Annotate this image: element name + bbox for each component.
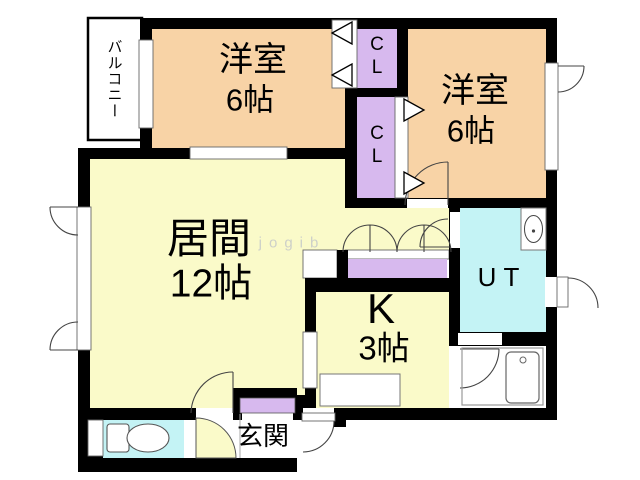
wall-shoe-cabinet	[233, 388, 297, 398]
bedroom2-window	[545, 63, 558, 170]
label-living-name: 居間	[167, 218, 251, 260]
living-window-arc-top	[50, 207, 78, 235]
label-closet-upper: CL	[368, 34, 387, 80]
wall-entrance-right-stub	[334, 413, 346, 427]
niche-wall	[337, 250, 348, 278]
wall-kitchen-left-upper	[305, 278, 316, 332]
utility-backdoor-leaf	[557, 277, 568, 307]
wall-kitchen-left-lower	[305, 388, 316, 408]
sink-basin-icon	[525, 216, 543, 243]
watermark: jogib	[259, 236, 326, 251]
label-closet-lower: CL	[368, 123, 387, 169]
wall-bath-bottom	[449, 408, 557, 420]
label-entrance: 玄関	[237, 423, 289, 449]
toilet-bowl-icon	[127, 424, 169, 452]
label-bedroom2-size: 6帖	[447, 116, 495, 147]
bedroom1-sliding-door	[190, 147, 287, 159]
wall-toilet-hall	[184, 408, 196, 420]
utility-backdoor-arc	[568, 278, 598, 308]
toilet-tank-icon	[107, 424, 129, 452]
living-window	[77, 207, 91, 350]
toilet-doorway	[184, 420, 196, 458]
front-door-leaf	[302, 413, 335, 421]
accordion-closet	[303, 250, 449, 278]
bath-door-gap	[458, 333, 502, 345]
bedroom2-window-arc	[558, 66, 584, 92]
shoe-cabinet	[240, 398, 295, 413]
wall-closet-upper-right	[397, 18, 408, 97]
label-kitchen-name: K	[367, 288, 395, 330]
hall-floor	[345, 208, 449, 252]
label-bedroom1-name: 洋室	[219, 43, 287, 77]
label-bedroom2-name: 洋室	[441, 74, 509, 108]
label-balcony: バルコニー	[107, 39, 122, 119]
label-kitchen-size: 3帖	[358, 332, 409, 365]
floorplan: バルコニー 洋室 6帖 洋室 6帖 CL CL 居間 12帖 K 3帖 UT 玄…	[0, 0, 640, 480]
closet-strip-floor	[347, 259, 447, 278]
wall-closet-lower-left	[345, 88, 357, 198]
toilet-door-swing	[196, 418, 236, 458]
label-living-size: 12帖	[170, 265, 252, 304]
balcony-window	[139, 40, 153, 128]
bedroom2-door-gap	[407, 199, 448, 208]
label-bedroom1-size: 6帖	[226, 85, 274, 116]
kitchen-counter	[320, 374, 400, 406]
label-utility: UT	[478, 264, 527, 290]
utility-backdoor-gap	[545, 277, 558, 307]
sink-drain-icon	[532, 229, 535, 232]
wall-bottom	[78, 458, 297, 472]
bathtub-icon	[506, 352, 539, 403]
utility-door-gap	[450, 212, 460, 248]
toilet-window	[88, 420, 103, 456]
living-window-arc-bottom	[50, 322, 78, 350]
storage-niche	[303, 250, 337, 278]
kitchen-passage	[303, 332, 317, 388]
